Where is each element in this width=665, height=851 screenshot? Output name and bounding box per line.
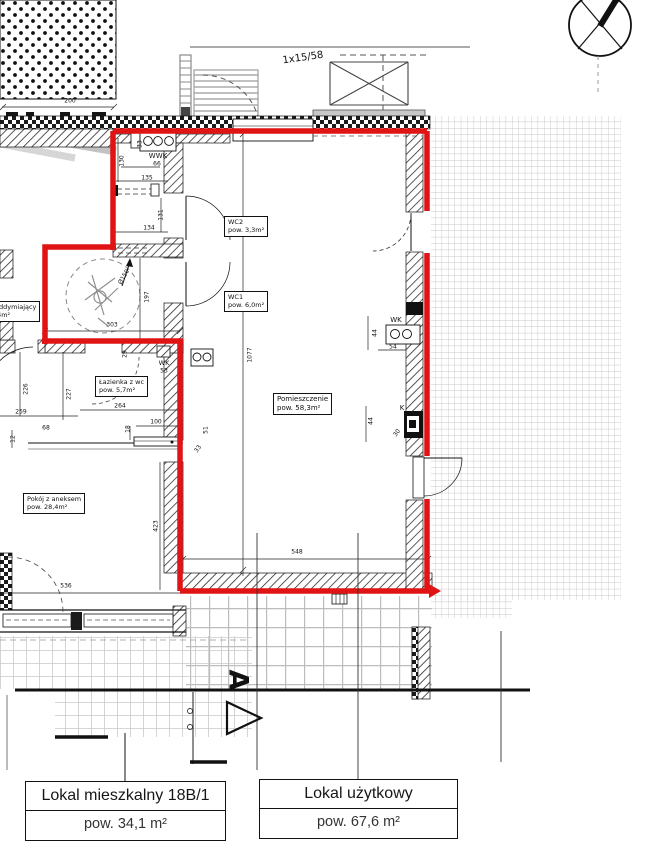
dimension-label: 131 [158,209,165,220]
legend-title: Lokal mieszkalny 18B/1 [26,782,225,811]
dimension-label: 33 [137,140,144,148]
dimension-label: 54 [389,344,397,351]
fixtures [66,132,423,604]
room-area: pow. 58,3m² [277,404,328,413]
room-area: pow. 3,3m² [228,226,264,234]
dimension-label: 548 [291,549,302,556]
wk-right-label: WK [390,316,402,324]
room-label-pomieszczenie: Pomieszczenie pow. 58,3m² [273,393,332,415]
room-label-wc2: WC2 pow. 3,3m² [224,216,268,237]
floor-plan-canvas: 200 33 130 66 135 134 131 197 303 Ø150 1… [0,0,665,851]
dimension-label: 53 [160,368,168,375]
legend-area: pow. 34,1 m² [26,811,225,839]
room-area: pow. 5,7m² [99,386,144,394]
room-label-pokoj: Pokój z aneksem pow. 28,4m² [23,493,85,514]
dimension-label: 259 [15,409,26,416]
dimension-label: 303 [106,322,117,329]
dimension-label: 44 [372,329,379,337]
room-name: Pomieszczenie [277,395,328,404]
dimension-label: 226 [23,383,30,394]
dimension-label: 66 [153,161,161,168]
room-name: WC1 [228,293,264,301]
room-name: Łazienka z wc [99,378,144,386]
legend-unit-commercial: Lokal użytkowy pow. 67,6 m² [259,779,458,839]
dimension-label: 227 [66,388,73,399]
dimension-label: 44 [368,417,375,425]
legend-title: Lokal użytkowy [260,780,457,809]
wk-bath-label: WK [159,359,170,367]
room-name: WC2 [228,218,264,226]
dimension-label: 29 [122,350,129,358]
section-marker-letter: A [223,670,254,691]
dimension-label: 135 [141,175,152,182]
room-name: oddymiający [0,303,36,311]
dimension-label: 1077 [247,347,254,362]
wwk-label: WWK [149,152,167,160]
room-label-lazienka: Łazienka z wc pow. 5,7m² [95,376,148,397]
legend-area: pow. 67,6 m² [260,809,457,837]
dimension-label: 134 [143,225,154,232]
north-arrow-icon [569,0,631,93]
dimension-label: 100 [150,419,161,426]
dimension-label: 197 [144,291,151,302]
dimension-label: 536 [60,583,71,590]
room-area: pow. 28,4m² [27,503,81,511]
windows [0,119,423,640]
room-area: pow. 6,0m² [228,301,264,309]
room-name: Pokój z aneksem [27,495,81,503]
dimension-label: 18 [125,425,132,433]
room-label-oddymiajacy: oddymiający ,4m² [0,301,40,322]
room-label-wc1: WC1 pow. 6,0m² [224,291,268,312]
dimension-label: 68 [42,425,50,432]
dimension-label: 200 [64,98,75,105]
k-right-label: K [400,404,405,412]
unit-boundary-red [42,131,441,598]
legend-unit-residential: Lokal mieszkalny 18B/1 pow. 34,1 m² [25,781,226,841]
plan-linework [0,0,665,851]
dimension-label: 12 [10,435,17,443]
room-area: ,4m² [0,311,36,319]
dimension-label: 51 [203,426,210,434]
dimension-label: 423 [153,520,160,531]
dimension-label: 264 [114,403,125,410]
dimension-label: 130 [119,155,126,166]
